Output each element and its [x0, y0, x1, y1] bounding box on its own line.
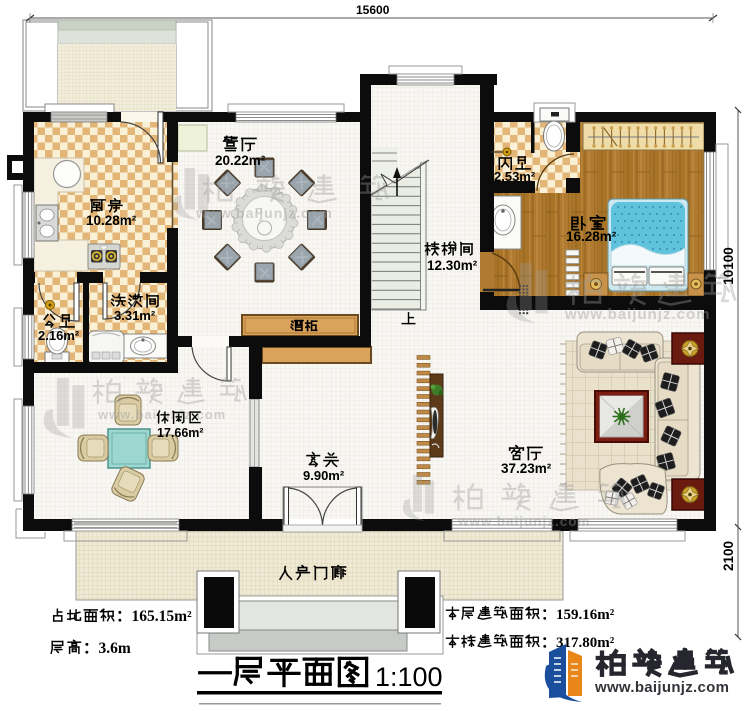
svg-text:www.baijunjz.com: www.baijunjz.com [457, 514, 591, 529]
svg-text:：317.80m²: ：317.80m² [541, 635, 615, 651]
svg-text:15600: 15600 [356, 3, 390, 17]
svg-text:www.baijunjz.com: www.baijunjz.com [564, 306, 710, 323]
svg-text:17.66m²: 17.66m² [157, 426, 204, 440]
svg-text:：159.16m²: ：159.16m² [541, 607, 615, 623]
svg-text:10100: 10100 [721, 247, 736, 285]
svg-text:www.baijunjz.com: www.baijunjz.com [195, 205, 333, 221]
svg-text:2.53m²: 2.53m² [494, 169, 536, 184]
svg-text:9.90m²: 9.90m² [303, 468, 345, 483]
svg-text:16.28m²: 16.28m² [566, 229, 617, 244]
svg-text:2100: 2100 [721, 541, 736, 571]
svg-text:10.28m²: 10.28m² [86, 213, 137, 228]
svg-text:12.30m²: 12.30m² [427, 258, 478, 273]
svg-text:2.16m²: 2.16m² [38, 328, 80, 343]
svg-text:1:100: 1:100 [375, 662, 443, 692]
svg-text:37.23m²: 37.23m² [501, 461, 552, 476]
svg-text:：3.6m: ：3.6m [83, 640, 131, 657]
svg-text:20.22m²: 20.22m² [215, 153, 266, 168]
svg-text:www.baijunjz.com: www.baijunjz.com [594, 679, 729, 696]
svg-text:3.31m²: 3.31m² [114, 308, 156, 323]
svg-text:：165.15m²: ：165.15m² [116, 608, 192, 625]
